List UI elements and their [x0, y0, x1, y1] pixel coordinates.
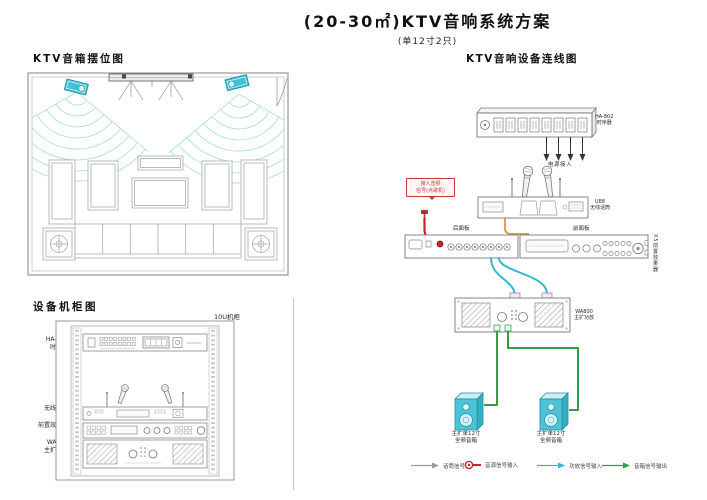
amp-feed-cable-2	[499, 258, 547, 294]
wiring-drawing	[395, 68, 707, 490]
page-title: (20-30㎡)KTV音响系统方案	[270, 8, 585, 32]
front-panel-label: 前面板	[573, 226, 590, 233]
side-table-right	[202, 161, 232, 210]
fx-rear-panel	[405, 235, 518, 258]
tv-screen	[109, 74, 193, 100]
page-subtitle: (单12寸2只)	[270, 34, 585, 47]
cabinet-drawing	[55, 320, 235, 482]
cabinet-sequencer	[83, 334, 207, 351]
room-plan-drawing	[25, 68, 295, 283]
legend-mic-signal: 话筒信号	[410, 461, 465, 470]
wireless-mic-left	[520, 166, 534, 198]
wireless-mic-right	[542, 166, 556, 198]
legend-source-input: 音源信号输入	[464, 460, 518, 470]
room-speaker-left	[64, 79, 88, 95]
sofa	[49, 160, 267, 258]
line-swatch	[601, 461, 631, 470]
rca-input-jack	[437, 241, 443, 247]
cabinet-effects	[83, 423, 207, 438]
legend-amp-input: 功放信号输入	[536, 461, 602, 470]
wiring-title: KTV音响设备连线图	[466, 51, 578, 66]
speaker-cable-left	[484, 331, 497, 405]
power-amplifier	[455, 293, 570, 332]
wall-mark-right	[188, 75, 192, 79]
audio-source-note: 接入音频 信号(点歌机)	[406, 178, 455, 197]
ktv-system-plan: (20-30㎡)KTV音响系统方案 (单12寸2只) KTV音箱摆位图	[0, 0, 707, 500]
fx-front-panel	[520, 235, 648, 258]
rear-panel-label: 后面板	[453, 226, 470, 233]
page-header: (20-30㎡)KTV音响系统方案 (单12寸2只)	[270, 8, 585, 47]
sequencer-label: HA-802 时序器	[595, 114, 613, 126]
power-feed-label: 电源接入	[548, 162, 572, 169]
mic-signal-cable	[505, 218, 528, 236]
power-feed-arrows	[544, 137, 586, 161]
cabinet-amplifier	[83, 440, 207, 468]
amp-label: WA800 主扩功放	[574, 309, 594, 321]
wiring-sequencer	[477, 108, 596, 137]
line-swatch	[536, 461, 566, 470]
speaker-label-left: 主扩单12寸 全频音箱	[446, 431, 486, 444]
fx-side-label: X5前置效果器	[652, 234, 658, 270]
corner-table-left	[43, 228, 75, 260]
corner-table-right	[245, 228, 277, 260]
main-speaker-right	[540, 393, 568, 430]
coffee-table	[132, 178, 188, 208]
legend-speaker-output: 音箱信号输出	[601, 461, 667, 470]
placement-title: KTV音箱摆位图	[33, 51, 125, 66]
speaker-label-right: 主扩单12寸 全频音箱	[531, 431, 571, 444]
door	[277, 77, 287, 106]
console-table	[138, 156, 183, 170]
main-speaker-left	[455, 393, 483, 430]
rca-plug-swatch	[464, 460, 482, 470]
side-table-left	[88, 161, 118, 210]
receiver-label: U88 无线话筒	[590, 199, 610, 211]
section-divider	[293, 298, 294, 490]
line-swatch	[410, 461, 440, 470]
cabinet-title: 设备机柜图	[33, 299, 98, 314]
mic-receiver	[478, 178, 588, 218]
wall-mark-left	[122, 75, 126, 79]
